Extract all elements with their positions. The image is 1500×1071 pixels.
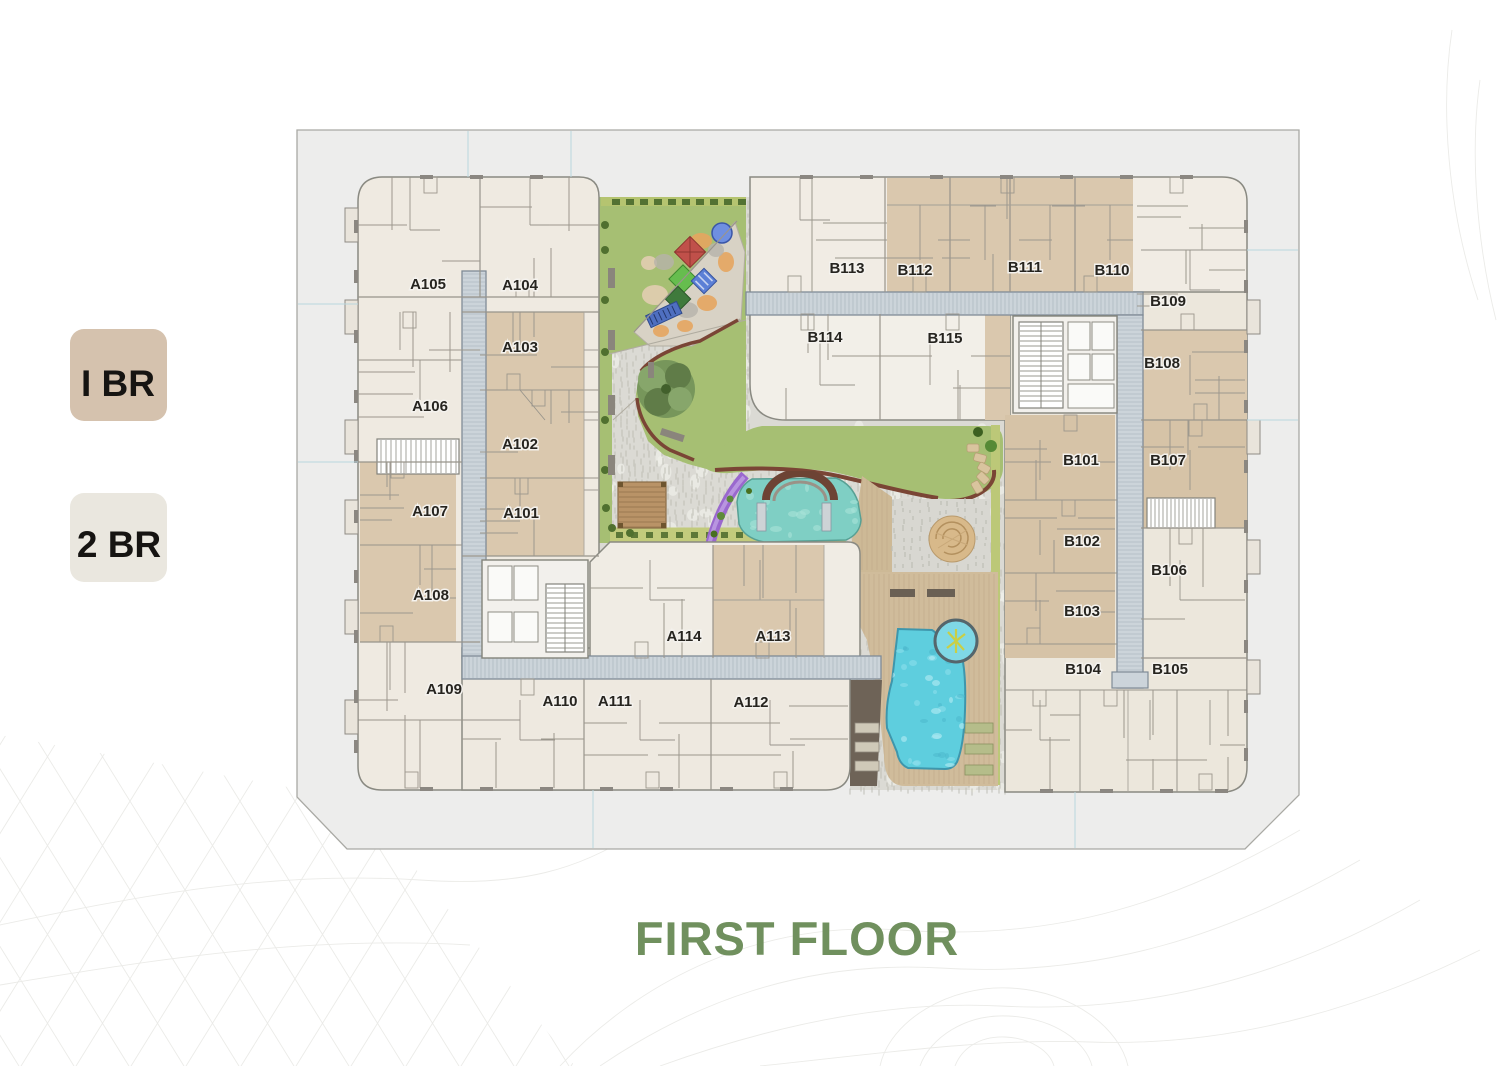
svg-text:I BR: I BR: [81, 363, 155, 404]
svg-text:B106: B106: [1151, 562, 1187, 579]
svg-text:B114: B114: [807, 329, 843, 346]
svg-text:A111: A111: [598, 693, 632, 710]
svg-text:A107: A107: [412, 503, 448, 520]
svg-text:A101: A101: [503, 505, 539, 522]
svg-text:A113: A113: [755, 628, 790, 645]
svg-text:A105: A105: [410, 276, 446, 293]
svg-text:B105: B105: [1152, 661, 1188, 678]
svg-text:B113: B113: [829, 260, 864, 277]
svg-text:A109: A109: [426, 681, 462, 698]
svg-text:A106: A106: [412, 398, 448, 415]
svg-text:B101: B101: [1063, 452, 1099, 469]
svg-text:A103: A103: [502, 339, 538, 356]
svg-text:B102: B102: [1064, 533, 1100, 550]
svg-text:A108: A108: [413, 587, 449, 604]
svg-text:A102: A102: [502, 436, 538, 453]
svg-text:A110: A110: [542, 693, 577, 710]
svg-text:A104: A104: [502, 277, 539, 294]
svg-text:B110: B110: [1094, 262, 1129, 279]
svg-text:B108: B108: [1144, 355, 1180, 372]
svg-text:A112: A112: [733, 694, 768, 711]
svg-text:B107: B107: [1150, 452, 1186, 469]
svg-text:B104: B104: [1065, 661, 1102, 678]
svg-text:A114: A114: [666, 628, 702, 645]
svg-text:B115: B115: [927, 330, 962, 347]
svg-text:FIRST FLOOR: FIRST FLOOR: [635, 912, 959, 965]
svg-text:B103: B103: [1064, 603, 1100, 620]
svg-text:B109: B109: [1150, 293, 1186, 310]
svg-text:B112: B112: [897, 262, 932, 279]
svg-text:B111: B111: [1008, 259, 1042, 276]
svg-text:2 BR: 2 BR: [77, 524, 161, 565]
